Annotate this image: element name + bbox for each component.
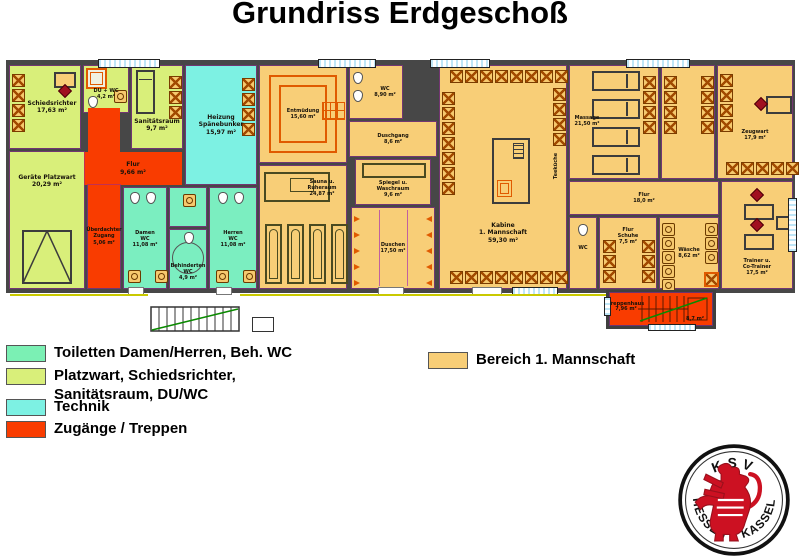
room-area: 20,29 m² bbox=[32, 181, 62, 189]
legend-swatch bbox=[428, 352, 468, 369]
legend-swatch bbox=[6, 345, 46, 362]
toilet-icon bbox=[146, 192, 156, 204]
legend-item-toiletten: Toiletten Damen/Herren, Beh. WC bbox=[6, 344, 384, 363]
shelf-box-icon bbox=[701, 121, 714, 134]
garage-door-icon bbox=[22, 230, 72, 284]
locker-box-icon bbox=[540, 271, 553, 284]
room-label-2: Spänebunker bbox=[199, 121, 244, 129]
locker-box-icon bbox=[553, 118, 566, 131]
mirror-counter-icon bbox=[362, 163, 426, 178]
sink-icon bbox=[114, 90, 127, 103]
legend-swatch bbox=[6, 421, 46, 438]
washing-machine-icon bbox=[662, 223, 675, 236]
ksv-hessen-kassel-logo: KSV HESSEN KASSEL bbox=[678, 444, 790, 556]
room-wc2: WC bbox=[570, 218, 596, 288]
toilet-icon bbox=[578, 224, 588, 236]
locker-box-icon bbox=[495, 271, 508, 284]
room-wc-mannschaft: WC8,90 m² bbox=[350, 66, 402, 118]
washing-machine-icon bbox=[705, 237, 718, 250]
jet-icon bbox=[354, 248, 360, 254]
page-title: Grundriss Erdgeschoß bbox=[0, 0, 800, 31]
locker-box-icon bbox=[555, 271, 568, 284]
locker-box-icon bbox=[465, 271, 478, 284]
jet-icon bbox=[354, 232, 360, 238]
legend-swatch bbox=[6, 399, 46, 416]
cubicle-icon bbox=[331, 224, 348, 284]
washing-machine-icon bbox=[662, 265, 675, 278]
shelf-column bbox=[169, 76, 182, 119]
room-treppenhaus: Treppenhaus7,96 m² 8,7 m² bbox=[610, 293, 712, 325]
room-label: Geräte Platzwart bbox=[18, 174, 75, 182]
jet-icon bbox=[354, 216, 360, 222]
room-heizung: HeizungSpänebunker15,97 m² bbox=[186, 66, 256, 184]
room-duschen: Duschen17,50 m² bbox=[352, 208, 434, 288]
pool-inner-icon bbox=[279, 85, 327, 143]
sink-icon bbox=[216, 270, 229, 283]
kitchenette-icon bbox=[492, 138, 530, 204]
locker-box-icon bbox=[553, 103, 566, 116]
locker-box-icon bbox=[442, 152, 455, 165]
shelf-box-icon bbox=[720, 104, 733, 117]
legend-swatch bbox=[6, 368, 46, 385]
locker-col-left bbox=[442, 92, 455, 195]
cubicle-icon bbox=[309, 224, 326, 284]
jet-icon bbox=[426, 216, 432, 222]
legend-item-zugaenge: Zugänge / Treppen bbox=[6, 420, 187, 439]
toilet-icon bbox=[88, 96, 98, 108]
locker-row-bottom bbox=[450, 271, 568, 284]
room-label-2: Schuhe bbox=[618, 233, 639, 239]
locker-col-right bbox=[553, 88, 566, 146]
bench-box-icon bbox=[290, 178, 314, 192]
window bbox=[98, 59, 160, 68]
shelf-box-icon bbox=[741, 162, 754, 175]
room-area: 7,5 m² bbox=[619, 239, 637, 245]
room-area: 17,5 m² bbox=[746, 270, 767, 276]
toilet-row bbox=[130, 192, 156, 204]
toilet-icon bbox=[234, 192, 244, 204]
shelf-box-icon bbox=[701, 91, 714, 104]
room-area: 17,9 m² bbox=[744, 135, 765, 141]
room-label-teekueche: Teeküche bbox=[553, 153, 559, 179]
room-ueberdachter-zugang: ÜberdachterZugang5,06 m² bbox=[88, 185, 120, 288]
washing-machine-icon bbox=[705, 251, 718, 264]
cubicle-icon bbox=[287, 224, 304, 284]
desk-icon bbox=[766, 96, 792, 114]
locker-box-icon bbox=[442, 107, 455, 120]
room-schuhe: FlurSchuhe7,5 m² bbox=[600, 218, 656, 288]
room-trainer: Trainer u.Co-Trainer17,5 m² bbox=[722, 182, 792, 288]
room-area: 8,62 m² bbox=[678, 253, 699, 259]
jet-icon bbox=[426, 280, 432, 286]
window bbox=[648, 324, 696, 331]
room-sauna: Sauna u.Ruheraum24,87 m² bbox=[260, 166, 346, 288]
room-area: 17,63 m² bbox=[37, 107, 67, 115]
locker-box-icon bbox=[465, 70, 478, 83]
room-area: 4,9 m² bbox=[179, 275, 197, 281]
locker-box-icon bbox=[442, 137, 455, 150]
room-area: 11,08 m² bbox=[221, 242, 246, 248]
locker-box-icon bbox=[480, 271, 493, 284]
window bbox=[626, 59, 690, 68]
room-label: Schiedsrichter bbox=[28, 100, 77, 108]
desk-icon bbox=[744, 204, 774, 220]
room-massage: Massage21,50 m² bbox=[570, 66, 658, 178]
locker-box-icon bbox=[442, 92, 455, 105]
site-line bbox=[240, 294, 606, 296]
massage-table-icon bbox=[592, 155, 640, 175]
shelf-row-bottom bbox=[726, 162, 799, 175]
door-opening bbox=[216, 287, 232, 295]
room-label: Flur bbox=[126, 161, 139, 169]
stove-icon bbox=[497, 180, 512, 197]
shelf-box-icon bbox=[242, 78, 255, 91]
room-geraete-platzwart: Geräte Platzwart20,29 m² bbox=[10, 152, 84, 288]
room-herren-wc: HerrenWC11,08 m² bbox=[210, 188, 256, 288]
locker-box-icon bbox=[643, 121, 656, 134]
jet-icon bbox=[354, 280, 360, 286]
corridor-red-vertical bbox=[88, 108, 120, 156]
shelf-box-icon bbox=[603, 255, 616, 268]
shelf-box-icon bbox=[771, 162, 784, 175]
room-area: 15,97 m² bbox=[206, 129, 236, 137]
locker-box-icon bbox=[643, 91, 656, 104]
shelf-box-icon bbox=[664, 76, 677, 89]
jet-icon bbox=[426, 232, 432, 238]
shelf-column bbox=[12, 74, 25, 132]
sink-icon bbox=[243, 270, 256, 283]
shelf-box-icon bbox=[603, 270, 616, 283]
room-area: 17,50 m² bbox=[381, 248, 406, 254]
locker-box-icon bbox=[450, 70, 463, 83]
room-label: Spiegel u. bbox=[379, 180, 407, 186]
locker-box-icon bbox=[525, 70, 538, 83]
shelf-box-icon bbox=[12, 89, 25, 102]
bed-icon bbox=[136, 70, 155, 114]
room-area: 18,0 m² bbox=[633, 198, 654, 204]
locker-box-icon bbox=[442, 182, 455, 195]
washer-col-right bbox=[705, 223, 718, 264]
window bbox=[788, 198, 797, 252]
shelf-box-icon bbox=[720, 119, 733, 132]
locker-row-top bbox=[450, 70, 568, 83]
room-schiedsrichter: Schiedsrichter17,63 m² bbox=[10, 66, 80, 148]
room-flur2: Flur18,0 m² bbox=[570, 182, 718, 214]
shelf-box-icon bbox=[12, 119, 25, 132]
room-label-2: Zugang bbox=[93, 233, 114, 239]
room-label: Flur bbox=[638, 192, 649, 198]
room-label: Duschen bbox=[381, 242, 405, 248]
room-area: 9,6 m² bbox=[384, 192, 402, 198]
shelf-column bbox=[242, 78, 255, 136]
shelf-box-icon bbox=[642, 255, 655, 268]
sink-icon bbox=[183, 194, 196, 207]
locker-box-icon bbox=[442, 167, 455, 180]
legend-label: Technik bbox=[54, 398, 110, 417]
room-label: Herren bbox=[223, 230, 242, 236]
locker-box-icon bbox=[553, 88, 566, 101]
exterior-stairs-icon bbox=[150, 306, 240, 332]
pool-ladder-icon bbox=[322, 102, 345, 120]
highlight-box-icon bbox=[704, 272, 719, 287]
locker-box-icon bbox=[442, 122, 455, 135]
locker-box-icon bbox=[643, 76, 656, 89]
shelf-box-icon bbox=[701, 76, 714, 89]
shelf-box-icon bbox=[12, 74, 25, 87]
site-line bbox=[10, 294, 148, 296]
room-label: Duschgang bbox=[377, 133, 408, 139]
shower-jets-right bbox=[426, 216, 432, 286]
shelf-box-icon bbox=[664, 121, 677, 134]
room-waesche: Wäsche8,62 m² bbox=[660, 218, 718, 288]
shelf-box-icon bbox=[786, 162, 799, 175]
room-damen-wc: DamenWC11,08 m² bbox=[124, 188, 166, 288]
shoe-rack-left bbox=[603, 240, 616, 283]
locker-box-icon bbox=[450, 271, 463, 284]
room-label: WC bbox=[578, 245, 587, 251]
room-duschgang: Duschgang8,6 m² bbox=[350, 122, 436, 156]
legend-item-bereich: Bereich 1. Mannschaft bbox=[428, 351, 635, 370]
chair-icon bbox=[750, 188, 764, 202]
room-spiegel-waschraum: Spiegel u.Waschraum9,6 m² bbox=[356, 160, 430, 204]
jet-icon bbox=[426, 264, 432, 270]
room-label-2: Waschraum bbox=[377, 186, 410, 192]
room-zeugwart: Zeugwart17,9 m² bbox=[718, 66, 792, 178]
room-label-2: Co-Trainer bbox=[743, 264, 771, 270]
room-label: Trainer u. bbox=[743, 258, 770, 264]
shoe-rack-right bbox=[642, 240, 655, 283]
shelf-box-icon bbox=[642, 240, 655, 253]
shelf-box-icon bbox=[701, 106, 714, 119]
shower-jets-left bbox=[354, 216, 360, 286]
shower-divider bbox=[379, 210, 380, 286]
room-area: 8,90 m² bbox=[374, 92, 395, 98]
room-label: Kabine bbox=[491, 222, 514, 230]
locker-box-icon bbox=[510, 70, 523, 83]
toilet-row bbox=[218, 192, 244, 204]
exterior-step bbox=[252, 317, 274, 332]
shelf-box-icon bbox=[169, 76, 182, 89]
room-kabine: Kabine1. Mannschaft59,30 m² Teeküche bbox=[440, 66, 566, 288]
room-label: Flur bbox=[622, 227, 633, 233]
window bbox=[430, 59, 490, 68]
shelf-box-icon bbox=[242, 93, 255, 106]
shelf-col bbox=[720, 74, 733, 132]
cubicle-icon bbox=[265, 224, 282, 284]
desk-icon bbox=[744, 234, 774, 250]
jet-icon bbox=[354, 264, 360, 270]
sink-row bbox=[128, 270, 168, 283]
room-label: Zeugwart bbox=[741, 129, 768, 135]
room-behinderten-wc: BehindertenWC4,9 m² bbox=[170, 230, 206, 288]
shelf-box-icon bbox=[726, 162, 739, 175]
room-area: 8,6 m² bbox=[384, 139, 402, 145]
locker-box-icon bbox=[643, 106, 656, 119]
room-label: Wäsche bbox=[678, 247, 700, 253]
legend-label: Toiletten Damen/Herren, Beh. WC bbox=[54, 344, 384, 363]
shelf-box-icon bbox=[169, 91, 182, 104]
chair-icon bbox=[750, 218, 764, 232]
washing-machine-icon bbox=[662, 237, 675, 250]
washing-machine-icon bbox=[662, 251, 675, 264]
locker-box-icon bbox=[555, 70, 568, 83]
locker-box-icon bbox=[495, 70, 508, 83]
locker-box-icon bbox=[510, 271, 523, 284]
toilet-icon bbox=[353, 90, 363, 102]
shower-divider bbox=[407, 210, 408, 286]
room-label-2: WC bbox=[228, 236, 237, 242]
room-entmuedung: Entmüdung15,60 m² bbox=[260, 66, 346, 162]
shelf-box-icon bbox=[642, 270, 655, 283]
room-label: WC bbox=[380, 86, 389, 92]
sink-icon bbox=[513, 143, 524, 159]
room-sanitaetsraum: Sanitätsraum9,7 m² bbox=[132, 66, 182, 148]
shelf-box-icon bbox=[756, 162, 769, 175]
massage-table-icon bbox=[592, 71, 640, 91]
room-flur: Flur9,66 m² bbox=[84, 152, 182, 185]
toilet-icon bbox=[218, 192, 228, 204]
legend-item-technik: Technik bbox=[6, 398, 110, 417]
shower-icon bbox=[86, 68, 107, 89]
room-label-2: 1. Mannschaft bbox=[479, 229, 527, 237]
window bbox=[318, 59, 376, 68]
room-wc-vestibule bbox=[170, 188, 206, 226]
legend-label: Bereich 1. Mannschaft bbox=[476, 351, 635, 370]
room-area: 4,2 m² bbox=[97, 94, 115, 100]
room-label: Überdachter bbox=[86, 227, 121, 233]
locker-box-icon bbox=[540, 70, 553, 83]
shelf-box-icon bbox=[242, 123, 255, 136]
toilet-column bbox=[353, 72, 363, 102]
legend-label: Zugänge / Treppen bbox=[54, 420, 187, 439]
room-label: Damen bbox=[135, 230, 155, 236]
toilet-icon bbox=[353, 72, 363, 84]
shelf-box-icon bbox=[12, 104, 25, 117]
room-label: Heizung bbox=[207, 114, 234, 122]
shelf-box-icon bbox=[169, 106, 182, 119]
shelf-col-left bbox=[664, 76, 677, 134]
room-area: 59,30 m² bbox=[488, 237, 518, 245]
shelf-box-icon bbox=[664, 106, 677, 119]
locker-col bbox=[643, 76, 656, 134]
locker-box-icon bbox=[525, 271, 538, 284]
massage-table-icon bbox=[592, 99, 640, 119]
room-label-2: WC bbox=[140, 236, 149, 242]
room-area: 9,7 m² bbox=[146, 125, 168, 133]
washing-machine-icon bbox=[705, 223, 718, 236]
jet-icon bbox=[426, 248, 432, 254]
window bbox=[604, 297, 611, 316]
locker-box-icon bbox=[480, 70, 493, 83]
sink-icon bbox=[155, 270, 168, 283]
stairs-icon bbox=[638, 295, 710, 323]
toilet-icon bbox=[130, 192, 140, 204]
locker-box-icon bbox=[553, 133, 566, 146]
shelf-col-right bbox=[701, 76, 714, 134]
room-area: 7,96 m² bbox=[615, 307, 636, 313]
room-area: 11,08 m² bbox=[133, 242, 158, 248]
massage-table-icon bbox=[592, 127, 640, 147]
room-geraeteraum bbox=[662, 66, 714, 178]
shelf-box-icon bbox=[664, 91, 677, 104]
room-du-wc: DU + WC4,2 m² bbox=[84, 66, 128, 112]
shelf-box-icon bbox=[720, 89, 733, 102]
sink-row bbox=[216, 270, 256, 283]
shelf-box-icon bbox=[720, 74, 733, 87]
floor-plan: Schiedsrichter17,63 m² DU + WC4,2 m² San… bbox=[6, 60, 795, 293]
room-area: 5,06 m² bbox=[93, 240, 114, 246]
turning-circle-icon bbox=[172, 242, 204, 274]
shelf-box-icon bbox=[603, 240, 616, 253]
room-area: 9,66 m² bbox=[120, 169, 146, 177]
sink-icon bbox=[128, 270, 141, 283]
shelf-box-icon bbox=[242, 108, 255, 121]
washer-col-left bbox=[662, 223, 675, 292]
